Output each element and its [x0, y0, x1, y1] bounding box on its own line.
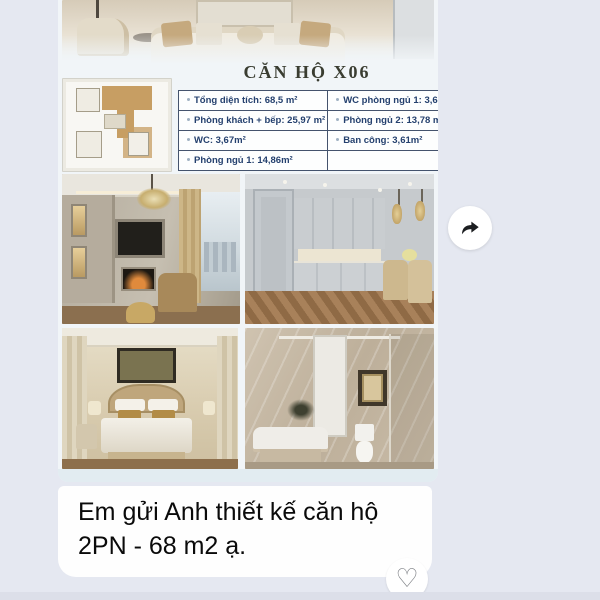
- table-row: Phòng khách + bếp: 25,97 m² Phòng ngủ 2:…: [179, 111, 439, 131]
- pendant-light-shape: [415, 201, 425, 221]
- spec-cell: WC phòng ngủ 1: 3,67 m²: [328, 91, 438, 111]
- apartment-title: CĂN HỘ X06: [178, 62, 436, 86]
- pendant-stem-shape: [398, 189, 400, 205]
- floor-plan-image: [62, 78, 172, 172]
- toilet-tank-shape: [355, 424, 374, 441]
- photo-living-room-top: [62, 0, 434, 64]
- toilet-shape: [356, 441, 373, 464]
- bullet-dot: [187, 118, 190, 121]
- dining-chair-shape: [408, 260, 433, 304]
- bed-shape: [101, 418, 193, 453]
- chandelier-shape: [137, 188, 171, 210]
- photo-kitchen-dining: [245, 174, 434, 324]
- dining-chair-shape: [383, 260, 408, 301]
- spec-text: Phòng ngủ 1: 14,86m²: [194, 155, 293, 166]
- gold-table-shape: [126, 302, 154, 323]
- spec-cell: Tổng diện tích: 68,5 m²: [179, 91, 328, 111]
- spec-text: Phòng khách + bếp: 25,97 m²: [194, 115, 325, 126]
- table-row: WC: 3,67m² Ban công: 3,61m²: [179, 131, 439, 151]
- door-shape: [313, 335, 347, 437]
- table-row: Phòng ngủ 1: 14,86m²: [179, 151, 439, 171]
- floorplan-bed-shape: [76, 88, 100, 112]
- bedside-lamp-shape: [88, 401, 100, 415]
- bullet-dot: [187, 98, 190, 101]
- pendant-stem-shape: [421, 189, 423, 202]
- gold-armchair-shape: [158, 273, 197, 312]
- spec-cell: Phòng ngủ 1: 14,86m²: [179, 151, 328, 171]
- bullet-dot: [336, 118, 339, 121]
- chat-screen: CĂN HỘ X06 Tổng diện tích: 68,5 m² WC ph…: [0, 0, 600, 600]
- upper-cabinets-shape: [294, 198, 385, 249]
- lit-niche-shape: [71, 246, 87, 279]
- ceiling-spotlights-shape: [283, 180, 287, 184]
- spec-text: Ban công: 3,61m²: [343, 135, 422, 146]
- lower-cabinets-shape: [294, 261, 385, 294]
- wall-art-shape: [117, 348, 177, 383]
- tall-cabinet-shape: [253, 189, 295, 306]
- apartment-design-image[interactable]: CĂN HỘ X06 Tổng diện tích: 68,5 m² WC ph…: [58, 0, 438, 482]
- pendant-light-shape: [392, 204, 402, 224]
- spec-cell: Ban công: 3,61m²: [328, 131, 438, 151]
- bonsai-plant-shape: [287, 399, 315, 421]
- bullet-dot: [336, 98, 339, 101]
- spec-table: Tổng diện tích: 68,5 m² WC phòng ngủ 1: …: [178, 90, 438, 171]
- message-text: Em gửi Anh thiết kế căn hộ 2PN - 68 m2 ạ…: [78, 498, 378, 560]
- spec-cell: [328, 151, 438, 171]
- bullet-dot: [187, 138, 190, 141]
- spec-text: Tổng diện tích: 68,5 m²: [194, 95, 297, 106]
- spec-cell: WC: 3,67m²: [179, 131, 328, 151]
- photo-bathroom: [245, 328, 434, 469]
- shower-glass-shape: [389, 334, 434, 464]
- heart-icon: ♡: [395, 566, 418, 592]
- fireplace-shape: [121, 267, 157, 291]
- composer-bar-edge: [0, 592, 600, 600]
- framed-art-shape: [358, 370, 386, 405]
- vanity-sink-shape: [253, 427, 329, 450]
- card-bottom-margin: [58, 469, 438, 482]
- spec-cell: Phòng khách + bếp: 25,97 m²: [179, 111, 328, 131]
- bullet-dot: [187, 158, 190, 161]
- floorplan-bed-shape: [76, 131, 102, 159]
- city-view-shape: [204, 242, 236, 272]
- spec-text: Phòng ngủ 2: 13,78 m²: [343, 115, 438, 126]
- floor-shape: [245, 462, 434, 469]
- forward-arrow-icon: [459, 217, 481, 239]
- tv-shape: [115, 219, 165, 258]
- ceiling-shape: [62, 328, 238, 345]
- curtain-shape: [217, 336, 238, 460]
- ceiling-shape: [245, 174, 434, 189]
- photo-fade-overlay: [62, 35, 434, 64]
- table-row: Tổng diện tích: 68,5 m² WC phòng ngủ 1: …: [179, 91, 439, 111]
- wood-floor-shape: [62, 459, 238, 469]
- photo-bedroom: [62, 328, 238, 469]
- spec-text: WC: 3,67m²: [194, 135, 246, 146]
- cove-light-shape: [76, 191, 190, 194]
- backsplash-shape: [298, 249, 381, 261]
- photo-living-room-tv: [62, 174, 240, 324]
- floorplan-bathroom-shape: [104, 114, 126, 129]
- spec-cell: Phòng ngủ 2: 13,78 m²: [328, 111, 438, 131]
- floorplan-bed-shape: [128, 132, 150, 156]
- message-bubble[interactable]: Em gửi Anh thiết kế căn hộ 2PN - 68 m2 ạ…: [58, 486, 432, 577]
- forward-button[interactable]: [448, 206, 492, 250]
- lit-niche-shape: [71, 204, 87, 237]
- spec-text: WC phòng ngủ 1: 3,67 m²: [343, 95, 438, 106]
- bullet-dot: [336, 138, 339, 141]
- side-table-shape: [76, 424, 97, 449]
- bedside-lamp-shape: [203, 401, 215, 415]
